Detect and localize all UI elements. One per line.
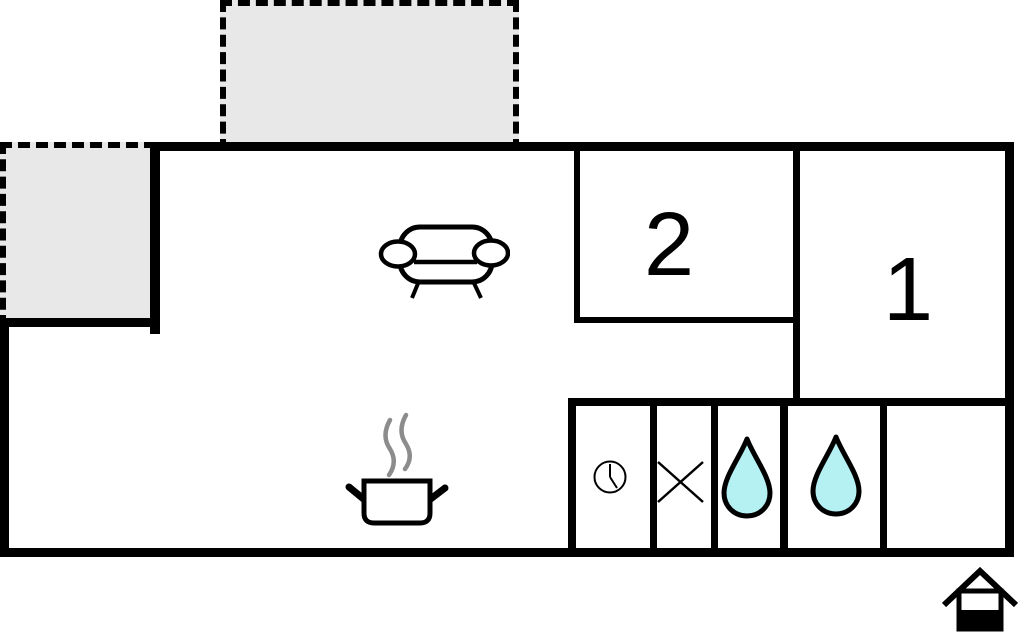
wall-outer-top xyxy=(150,142,1014,151)
wall-outer-left-lower xyxy=(0,318,9,557)
terrace-top xyxy=(220,0,519,151)
pot-body xyxy=(364,481,430,523)
steam-line xyxy=(386,420,394,475)
clock-icon xyxy=(590,457,630,497)
house-icon xyxy=(938,563,1024,639)
room-2-label: 2 xyxy=(619,198,719,292)
water-drop-icon xyxy=(810,433,862,519)
window-cross-icon xyxy=(654,458,706,506)
stove-icon xyxy=(340,412,452,528)
sofa-icon xyxy=(378,220,510,304)
wall-room1-left xyxy=(793,151,800,406)
room-1-label: 1 xyxy=(858,243,958,337)
wall-bathroom-top xyxy=(568,398,1014,406)
wall-room2-bottom xyxy=(574,317,800,323)
bathroom-compartment-empty xyxy=(887,406,1005,548)
house-base xyxy=(957,610,1003,629)
wall-bathroom-divider-2 xyxy=(711,406,718,548)
wall-outer-bottom xyxy=(0,548,1014,557)
living-kitchen-area xyxy=(9,151,574,548)
wall-outer-right xyxy=(1005,142,1014,557)
steam-line xyxy=(402,415,410,469)
water-drop-icon xyxy=(721,435,773,521)
floor-plan: 2 1 xyxy=(0,0,1024,639)
wall-bathroom-divider-4 xyxy=(880,406,887,548)
